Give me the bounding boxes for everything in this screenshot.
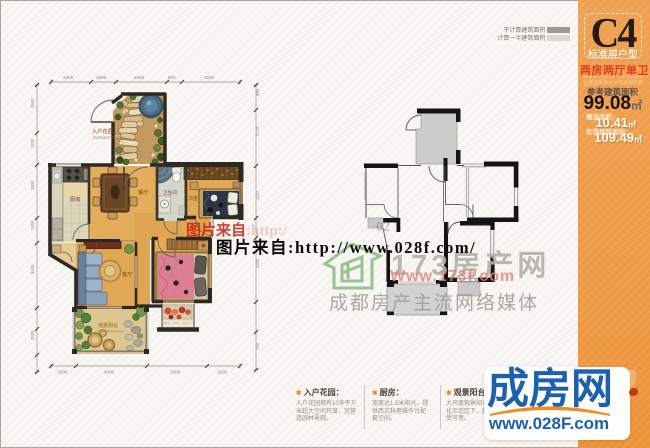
svg-text:3500: 3500	[30, 264, 35, 274]
svg-text:3200: 3200	[204, 75, 215, 80]
svg-text:2205: 2205	[63, 75, 74, 80]
svg-text:1110: 1110	[255, 191, 260, 200]
svg-text:餐厅: 餐厅	[138, 188, 148, 196]
svg-text:1300: 1300	[30, 220, 35, 230]
svg-text:4400: 4400	[104, 370, 115, 375]
svg-text:1900: 1900	[96, 75, 107, 80]
svg-text:次卧: 次卧	[188, 194, 198, 202]
svg-text:客厅: 客厅	[122, 270, 132, 278]
svg-text:4200: 4200	[255, 258, 260, 268]
svg-text:厨房: 厨房	[70, 195, 80, 203]
svg-text:3300: 3300	[170, 370, 181, 375]
svg-text:990: 990	[255, 88, 260, 96]
svg-text:1700: 1700	[30, 138, 35, 148]
svg-text:Sightseeing balcony: Sightseeing balcony	[97, 329, 124, 333]
svg-text:ENTRANCE GARDEN: ENTRANCE GARDEN	[93, 136, 126, 140]
svg-text:700: 700	[255, 342, 260, 350]
svg-text:2600: 2600	[30, 98, 35, 108]
svg-text:观景阳台: 观景阳台	[98, 322, 118, 329]
svg-text:2900: 2900	[30, 180, 35, 190]
svg-text:卫生间: 卫生间	[163, 189, 177, 196]
svg-text:2770: 2770	[255, 126, 260, 136]
svg-text:2500: 2500	[30, 330, 35, 340]
svg-text:900: 900	[168, 75, 176, 80]
svg-text:入户花园: 入户花园	[92, 127, 113, 135]
svg-text:1500: 1500	[57, 370, 68, 375]
svg-text:1600: 1600	[217, 370, 228, 375]
svg-text:2400: 2400	[134, 75, 145, 80]
